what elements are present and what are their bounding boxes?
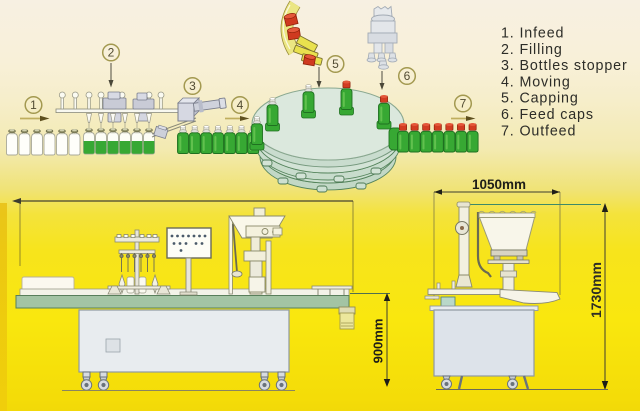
svg-text:6: 6 bbox=[404, 69, 411, 83]
svg-text:1050mm: 1050mm bbox=[472, 177, 526, 192]
svg-text:5: 5 bbox=[332, 57, 339, 71]
svg-text:1. Infeed: 1. Infeed bbox=[501, 26, 564, 42]
svg-text:1730mm: 1730mm bbox=[588, 262, 604, 318]
svg-text:5. Capping: 5. Capping bbox=[501, 91, 579, 107]
svg-text:900mm: 900mm bbox=[371, 319, 386, 364]
svg-text:4. Moving: 4. Moving bbox=[501, 74, 571, 90]
svg-text:3: 3 bbox=[189, 79, 196, 93]
svg-text:7: 7 bbox=[460, 97, 467, 111]
svg-text:3. Bottles stopper: 3. Bottles stopper bbox=[501, 58, 628, 74]
svg-text:6. Feed caps: 6. Feed caps bbox=[501, 107, 594, 123]
svg-text:2: 2 bbox=[108, 46, 115, 60]
svg-text:1: 1 bbox=[30, 98, 37, 112]
svg-text:7. Outfeed: 7. Outfeed bbox=[501, 123, 576, 139]
svg-text:4: 4 bbox=[237, 98, 244, 112]
svg-text:2. Filling: 2. Filling bbox=[501, 42, 563, 58]
